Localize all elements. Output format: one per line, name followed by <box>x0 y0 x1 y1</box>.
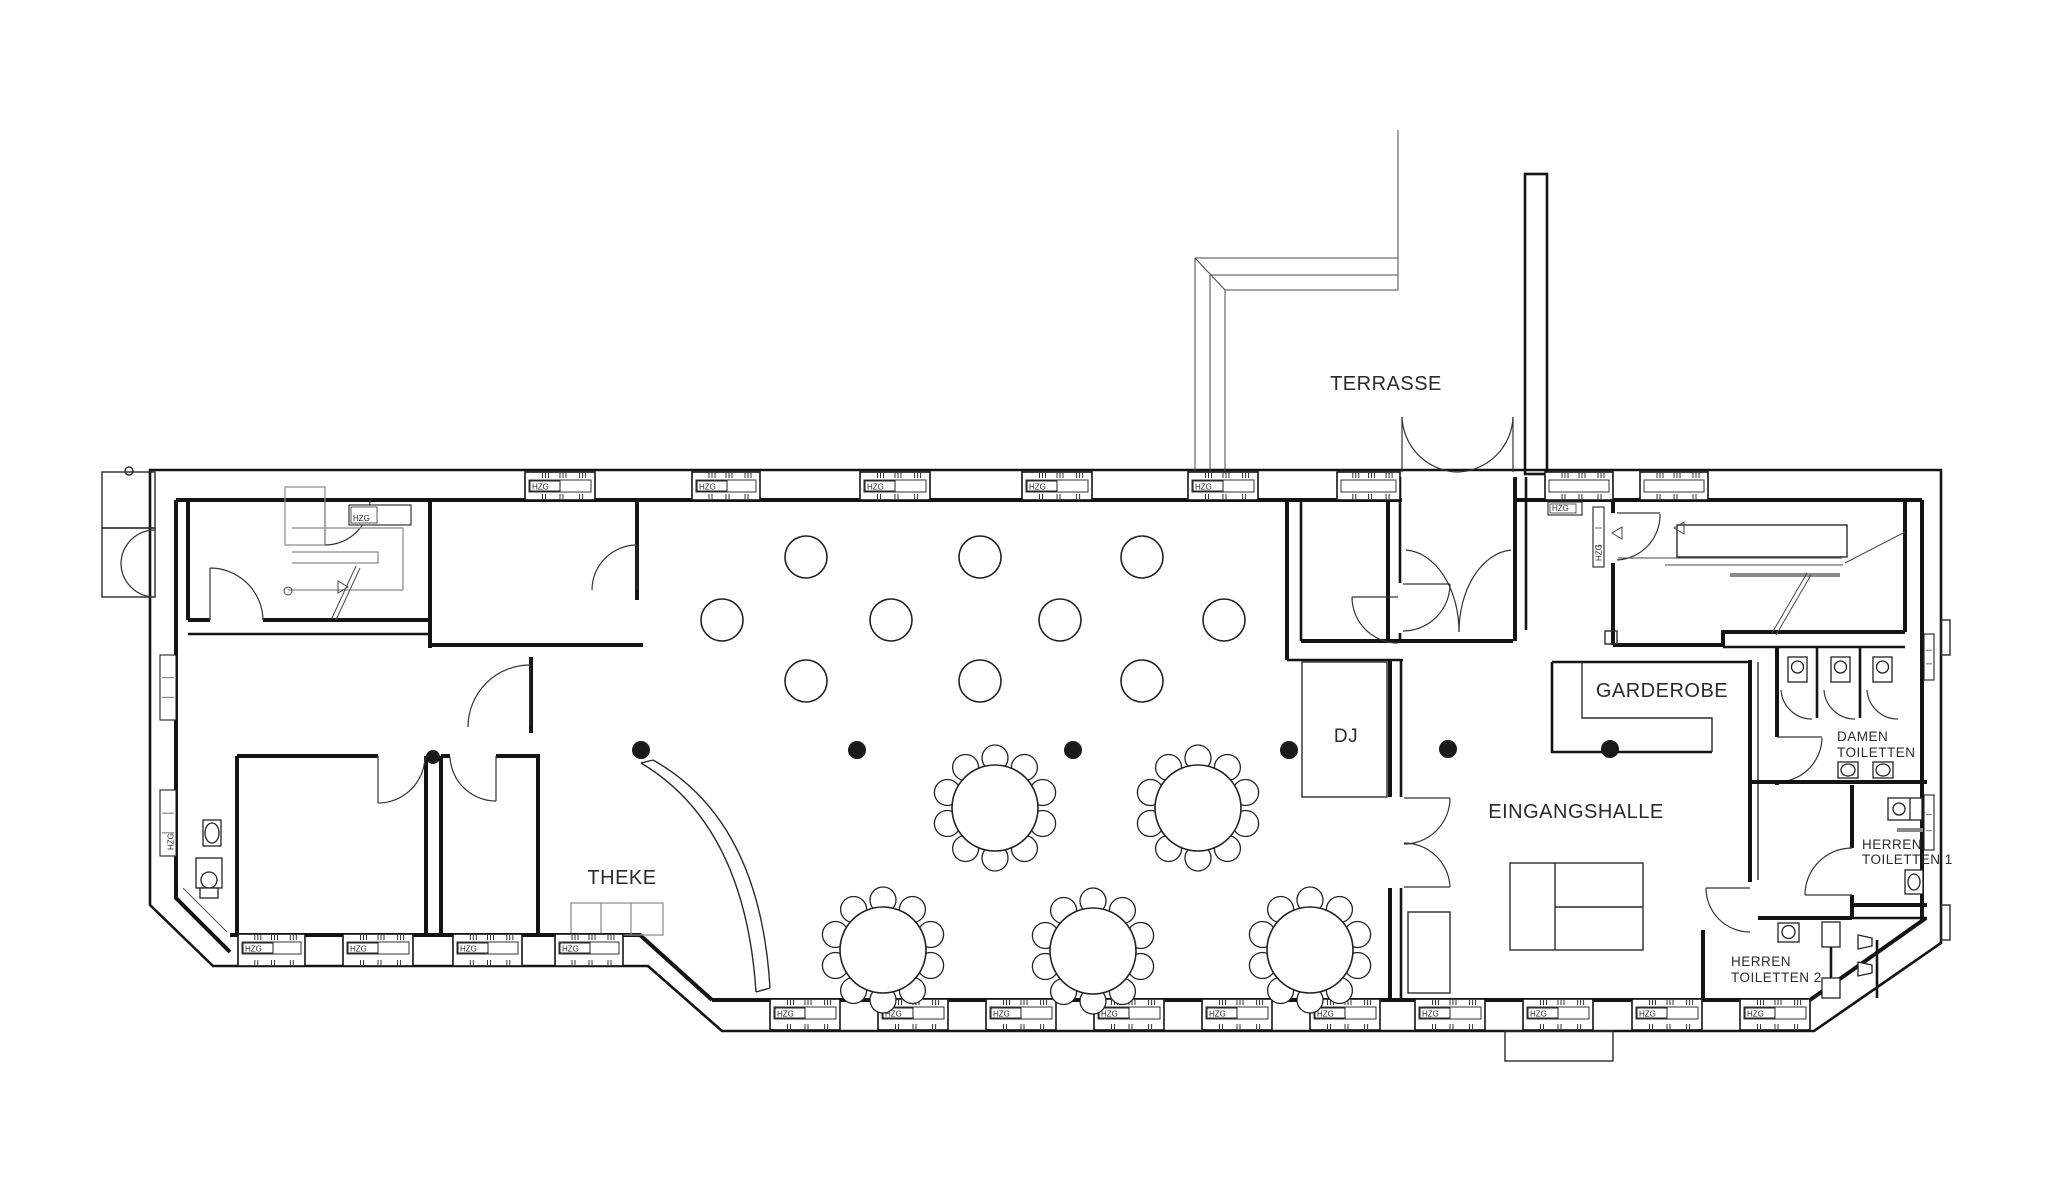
urinal-icon <box>1858 935 1872 949</box>
standing-table-6 <box>1203 599 1245 641</box>
top-window-4: HZG <box>1188 472 1258 500</box>
passage-hzg-box: HZG <box>1548 502 1582 515</box>
eingangshalle-bench <box>1510 863 1643 950</box>
left-wc <box>183 820 227 932</box>
label-damen-line2: TOILETTEN <box>1837 745 1916 760</box>
standing-table-0 <box>785 536 827 578</box>
bottom-window-4: HZG <box>1202 999 1272 1030</box>
toilet-icon <box>1788 657 1892 682</box>
pilaster <box>1941 905 1950 940</box>
bench <box>1408 912 1450 993</box>
label-theke: THEKE <box>587 867 656 889</box>
left-arrow-icon <box>1612 527 1622 539</box>
table-top <box>1155 765 1241 851</box>
buffet-room <box>1605 500 1905 645</box>
vestibule <box>1406 477 1526 641</box>
toilet-block-walls <box>1703 647 1927 998</box>
hzg-label: HZG <box>1552 504 1569 513</box>
bottom-window-0: HZG <box>770 999 840 1030</box>
floor-plan-canvas: HZGHZGHZGHZGHZGHZGHZGHZGHZGHZGHZGHZGHZGH… <box>0 0 2048 1200</box>
under-rooms-window-0: HZG <box>238 934 305 966</box>
round-table-3 <box>1032 888 1153 1014</box>
bottom-window-9: HZG <box>1740 999 1810 1030</box>
right-wall-window-0 <box>1924 634 1934 680</box>
standing-table-7 <box>785 660 827 702</box>
wall-column <box>426 750 440 764</box>
round-table-0 <box>934 745 1055 871</box>
hzg-label: HZG <box>1595 544 1604 561</box>
column-5 <box>1601 740 1619 758</box>
hzg-label: HZG <box>867 483 884 492</box>
left-arrow-icon <box>1674 522 1684 534</box>
bottom-window-7: HZG <box>1523 999 1593 1030</box>
sink-icon <box>1838 762 1893 778</box>
standing-table-8 <box>959 660 1001 702</box>
top-window-3: HZG <box>1022 472 1092 500</box>
standing-table-2 <box>1121 536 1163 578</box>
label-herren1-line2: TOILETTEN 1 <box>1862 852 1953 867</box>
room1-radiator: HZG <box>349 505 411 525</box>
buffet-table <box>1677 525 1847 557</box>
bottom-window-8: HZG <box>1632 999 1702 1030</box>
entrance-steps <box>1505 1031 1613 1061</box>
under-rooms-window-3: HZG <box>555 934 623 966</box>
column-2 <box>1064 741 1082 759</box>
left-wall-radiator-1: HZG <box>160 790 176 856</box>
table-top <box>840 907 926 993</box>
hzg-label: HZG <box>353 514 370 523</box>
round-table-1 <box>1137 745 1258 871</box>
table-top <box>1050 908 1136 994</box>
back-counter <box>571 903 663 935</box>
left-wall-radiator-0 <box>160 655 176 720</box>
survey-point <box>125 467 133 475</box>
hzg-label: HZG <box>993 1010 1010 1019</box>
bottom-window-6: HZG <box>1415 999 1485 1030</box>
label-herren2-line1: HERREN <box>1731 954 1791 969</box>
column-1 <box>848 741 866 759</box>
label-herren1-line1: HERREN <box>1862 837 1922 852</box>
corridor <box>468 657 531 733</box>
hzg-label: HZG <box>167 833 176 850</box>
garderobe-counter <box>1552 662 1750 752</box>
hzg-label: HZG <box>562 945 579 954</box>
hzg-label: HZG <box>1195 483 1212 492</box>
storage-room-2 <box>430 500 643 645</box>
hzg-label: HZG <box>699 483 716 492</box>
round-table-4 <box>1249 887 1370 1013</box>
label-dj: DJ <box>1334 726 1358 747</box>
tray-rail <box>1730 573 1840 577</box>
terrace-french-doors <box>1402 417 1513 472</box>
hzg-label: HZG <box>1422 1010 1439 1019</box>
toilet-bowl-icon <box>201 872 217 888</box>
hzg-label: HZG <box>532 483 549 492</box>
hzg-label: HZG <box>1530 1010 1547 1019</box>
column-0 <box>632 741 650 759</box>
under-rooms-window-1: HZG <box>343 934 413 966</box>
standing-table-1 <box>959 536 1001 578</box>
hzg-label: HZG <box>777 1010 794 1019</box>
standing-table-3 <box>701 599 743 641</box>
hzg-label: HZG <box>1639 1010 1656 1019</box>
label-damen-line1: DAMEN <box>1837 729 1888 744</box>
label-garderobe: GARDEROBE <box>1596 680 1728 702</box>
top-window-5 <box>1337 472 1400 500</box>
top-window-6 <box>1545 472 1613 500</box>
top-window-7 <box>1640 472 1708 500</box>
round-table-2 <box>822 887 943 1013</box>
hzg-label: HZG <box>1747 1010 1764 1019</box>
shelf <box>1897 828 1923 832</box>
top-window-1: HZG <box>692 472 760 500</box>
label-eingangshalle: EINGANGSHALLE <box>1488 801 1663 823</box>
table-top <box>952 765 1038 851</box>
terrace-wall <box>1525 174 1547 474</box>
under-rooms-window-2: HZG <box>453 934 522 966</box>
hzg-label: HZG <box>460 945 477 954</box>
hzg-label: HZG <box>1209 1010 1226 1019</box>
table-top <box>1267 907 1353 993</box>
pilaster <box>1941 620 1950 655</box>
hzg-label: HZG <box>1317 1010 1334 1019</box>
hzg-label: HZG <box>245 945 262 954</box>
bottom-window-2: HZG <box>986 999 1056 1030</box>
column-4 <box>1439 740 1457 758</box>
right-wall-window-1 <box>1924 795 1934 850</box>
standing-table-4 <box>870 599 912 641</box>
side-room-b <box>441 756 540 935</box>
left-alcove <box>102 467 155 597</box>
hzg-label: HZG <box>1101 1010 1118 1019</box>
standing-table-5 <box>1039 599 1081 641</box>
side-room-a <box>237 756 426 935</box>
standing-table-9 <box>1121 660 1163 702</box>
top-window-0: HZG <box>525 472 595 500</box>
label-terrasse: TERRASSE <box>1330 373 1442 395</box>
label-herren2-line2: TOILETTEN 2 <box>1731 970 1822 985</box>
column-3 <box>1280 741 1298 759</box>
hzg-label: HZG <box>1029 483 1046 492</box>
urinal-icon <box>1858 962 1872 976</box>
hall-east-wall <box>1390 660 1450 1000</box>
top-window-2: HZG <box>860 472 930 500</box>
passage-radiator: HZG <box>1593 507 1604 567</box>
hzg-label: HZG <box>350 945 367 954</box>
terrace <box>1195 130 1547 474</box>
